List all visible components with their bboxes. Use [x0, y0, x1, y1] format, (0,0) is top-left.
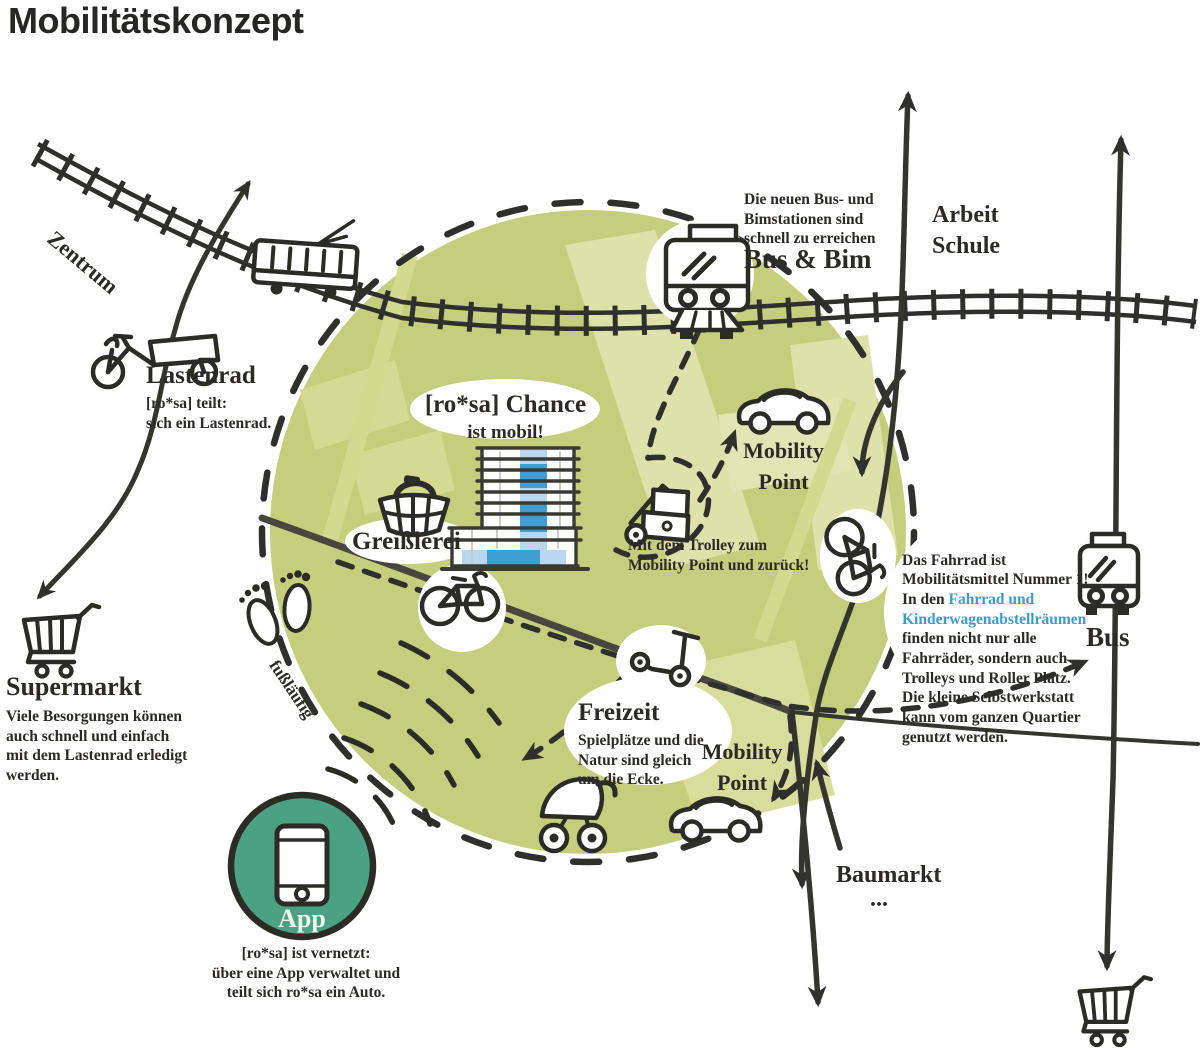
- arbeit-schule-label: Arbeit Schule: [932, 200, 1000, 262]
- greisslerei-heading: Greißlerei: [352, 526, 461, 558]
- concept-map: [0, 0, 1200, 1048]
- page-title: Mobilitätskonzept: [8, 0, 304, 42]
- rosa-chance-heading: [ro*sa] Chance: [418, 389, 593, 421]
- trolley-note: Mit dem Trolley zum Mobility Point und z…: [628, 536, 809, 575]
- smartphone-icon: [277, 826, 327, 904]
- shopping-cart-icon: [1080, 977, 1151, 1045]
- freizeit-note: Spielplätze und die Natur sind gleich um…: [578, 731, 704, 790]
- busbim-note: Die neuen Bus- und Bimstationen sind sch…: [744, 190, 875, 249]
- app-note: [ro*sa] ist vernetzt: über eine App verw…: [196, 944, 416, 1003]
- fahrrad-note-text-after: finden nicht nur alle Fahrräder, sondern…: [902, 630, 1081, 745]
- tram-side-icon: [252, 214, 359, 300]
- baumarkt-label: Baumarkt: [836, 860, 941, 890]
- lastenrad-note: [ro*sa] teilt: sich ein Lastenrad.: [146, 394, 271, 433]
- app-label: App: [266, 902, 338, 935]
- bus-label: Bus: [1086, 620, 1130, 654]
- supermarkt-heading: Supermarkt: [6, 670, 142, 703]
- lastenrad-heading: Lastenrad: [146, 360, 256, 392]
- busbim-heading: Bus & Bim: [744, 242, 872, 276]
- mobility-point-top-label: Mobility Point: [736, 436, 831, 498]
- mobility-concept-page: Mobilitätskonzept Zentrum Lastenrad [ro*…: [0, 0, 1200, 1048]
- supermarkt-note: Viele Besorgungen können auch schnell un…: [6, 707, 187, 786]
- baumarkt-ellipsis: ...: [870, 884, 888, 914]
- freizeit-heading: Freizeit: [578, 697, 659, 729]
- mobility-point-bottom-label: Mobility Point: [692, 737, 792, 799]
- tram-front-icon: [666, 226, 748, 339]
- shopping-cart-icon: [24, 605, 99, 677]
- rosa-chance-subtitle: ist mobil!: [418, 421, 593, 445]
- halo-bicycle: [418, 564, 506, 652]
